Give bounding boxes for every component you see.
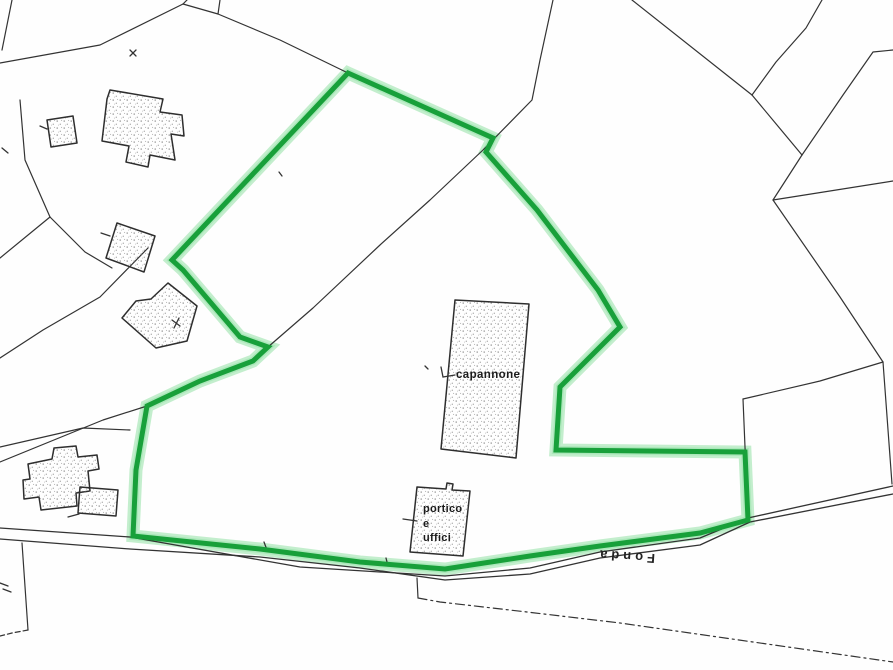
tick-mark — [279, 172, 282, 176]
tick-mark — [425, 366, 428, 369]
parcel-line — [0, 217, 50, 258]
label-capannone: capannone — [456, 369, 520, 381]
parcel-line — [752, 95, 802, 155]
label-portico-uffici: portico e uffici — [423, 502, 462, 546]
map-canvas — [0, 0, 893, 670]
parcel-line — [773, 200, 883, 362]
parcel-line — [2, 0, 12, 50]
parcel-line — [50, 217, 112, 268]
tick-mark — [40, 126, 47, 129]
tick-mark — [101, 233, 110, 236]
parcel-line — [0, 4, 183, 63]
parcel-line — [802, 50, 893, 155]
building-sw-small — [78, 487, 118, 516]
parcel-line — [632, 0, 752, 95]
tick-mark — [2, 148, 8, 153]
building-farmhouse-nw — [102, 90, 184, 167]
parcel-line — [20, 100, 50, 217]
cadastral-map: capannone portico e uffici Fonda — [0, 0, 893, 670]
label-portico-line3: uffici — [423, 531, 462, 546]
parcel-line — [773, 155, 802, 200]
building-mid-west-a — [106, 223, 155, 272]
tick-mark — [68, 514, 79, 517]
label-portico-line2: e — [423, 517, 462, 532]
parcel-line — [22, 543, 28, 630]
parcel-line — [218, 0, 220, 14]
building-small-nw — [47, 116, 77, 147]
parcel-line — [743, 362, 883, 399]
parcel-line — [0, 630, 28, 636]
parcel-line — [183, 4, 348, 73]
parcel-line — [773, 181, 893, 200]
parcel-line — [418, 598, 893, 662]
parcel-line — [0, 428, 130, 447]
tick-mark — [0, 583, 8, 586]
parcel-line — [883, 362, 892, 484]
building-mid-west-b — [122, 283, 197, 348]
parcel-line — [752, 0, 822, 95]
tick-mark — [3, 589, 11, 592]
parcel-line — [417, 578, 418, 598]
label-portico-line1: portico — [423, 502, 462, 517]
parcel-line — [183, 0, 187, 4]
